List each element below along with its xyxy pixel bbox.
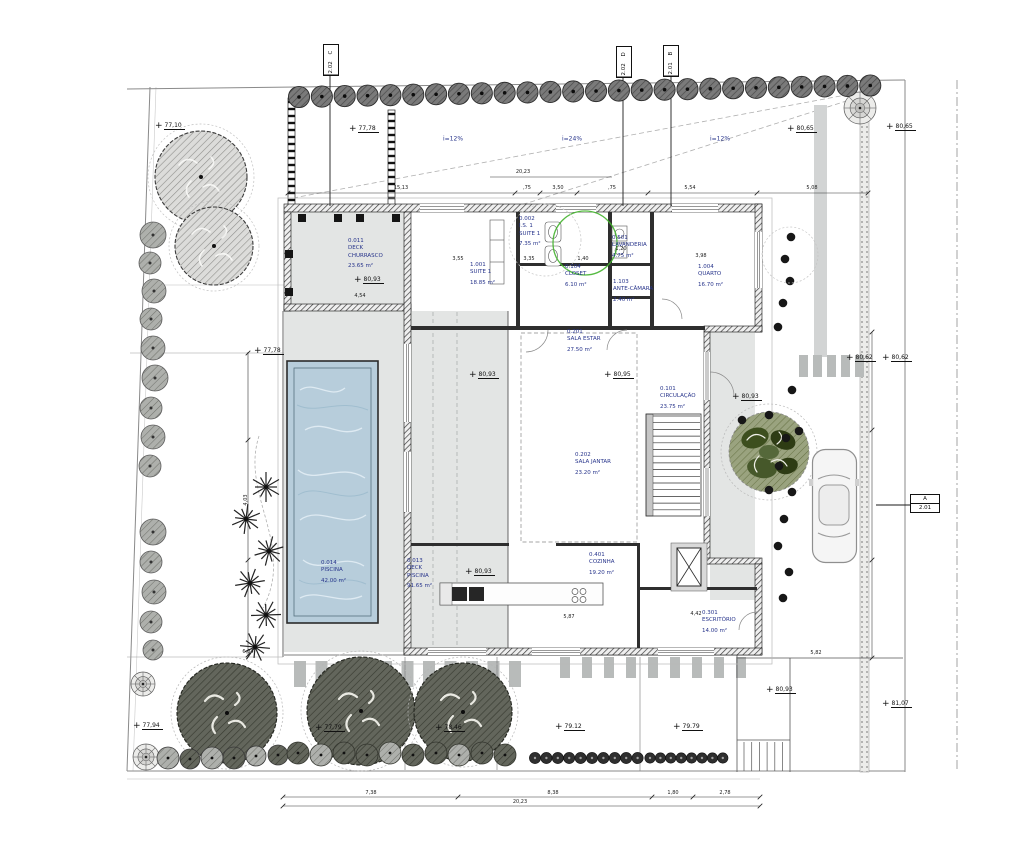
swimming-pool: [287, 361, 378, 623]
kitchen-counter: [440, 583, 603, 605]
staircase: [646, 414, 701, 516]
left-shrub-column: [139, 222, 168, 660]
elevator: [671, 543, 707, 591]
terrain-slope-lines: [293, 92, 862, 207]
deck-churrasco-floor: [291, 212, 404, 304]
site-plan-drawing: [0, 0, 1022, 866]
retaining-walls: [288, 98, 395, 206]
double-height-dashed-line: [521, 333, 637, 542]
floor-plan-canvas: 0.011DECK CHURRASCO23.65 m²1.001SUITE 11…: [0, 0, 1022, 866]
bathroom-fixtures: [490, 220, 627, 284]
entry-walkway: [814, 105, 827, 357]
boundary-wall: [860, 84, 869, 772]
exterior-stairs: [744, 742, 783, 771]
car-top-view: [809, 450, 859, 563]
car-mirror: [809, 479, 813, 486]
cooktop-icon: [452, 587, 467, 601]
hedge-row: [288, 75, 880, 108]
palm-plants: [232, 472, 283, 661]
